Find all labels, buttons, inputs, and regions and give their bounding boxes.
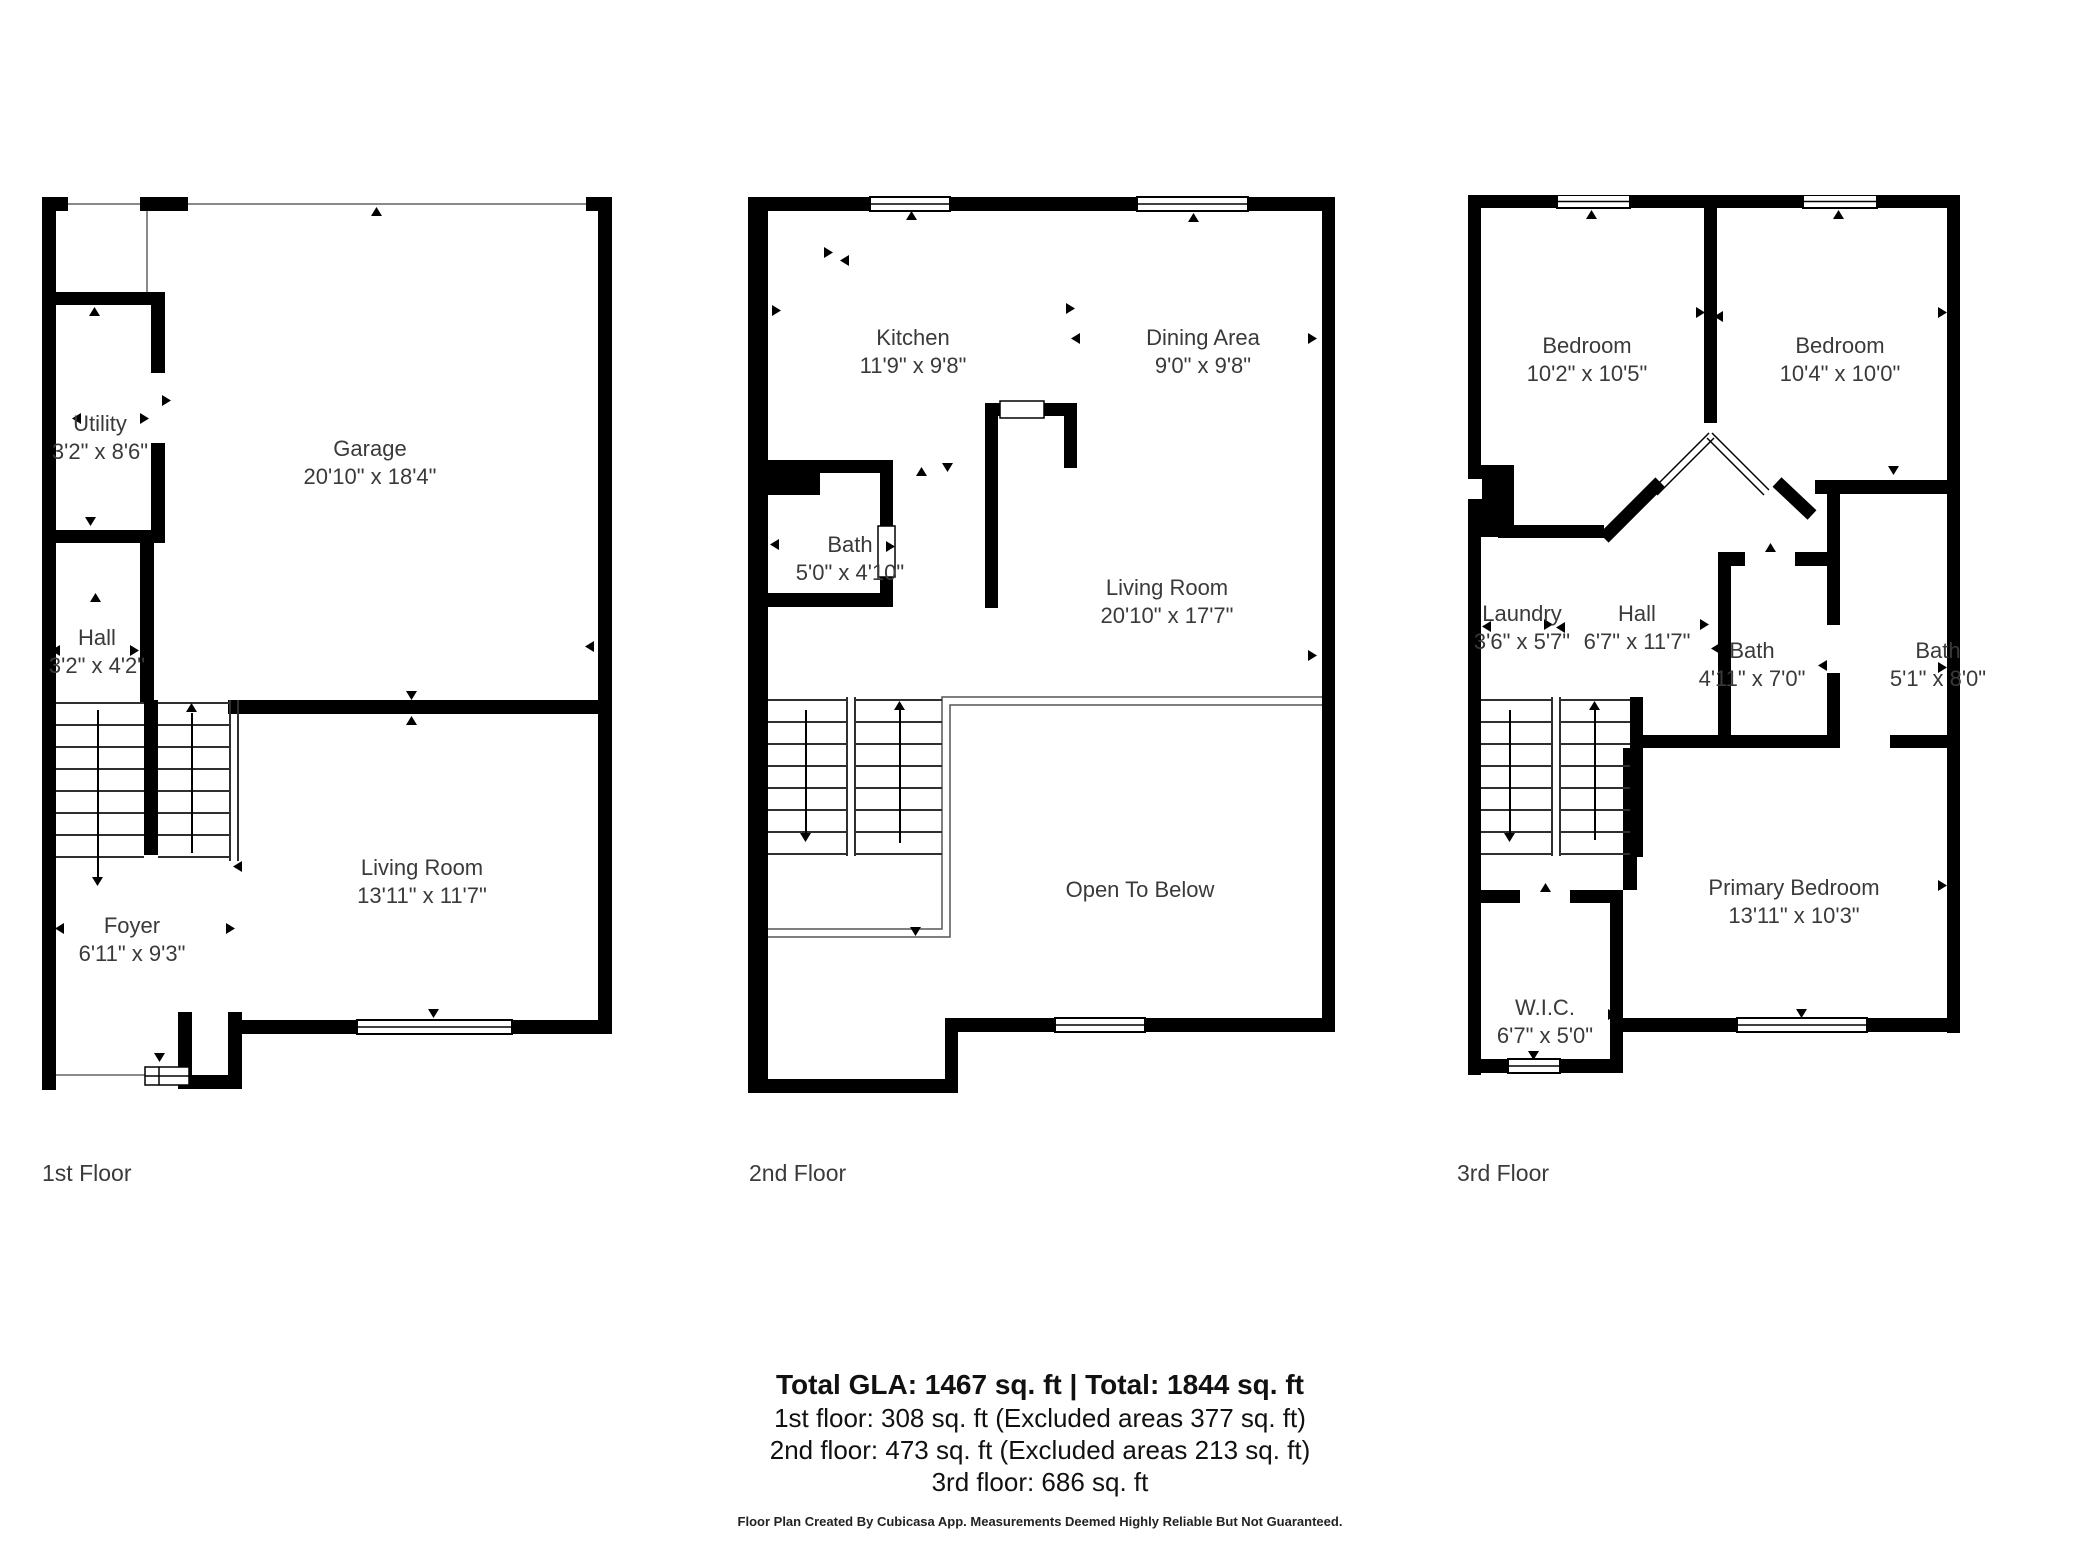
room-label-wic: W.I.C. 6'7" x 5'0" xyxy=(1497,994,1593,1050)
floor-plan-1: Utility 3'2" x 8'6" Garage 20'10" x 18'4… xyxy=(42,195,622,1095)
floor-plan-2: Kitchen 11'9" x 9'8" Dining Area 9'0" x … xyxy=(748,195,1338,1100)
room-label-foyer: Foyer 6'11" x 9'3" xyxy=(79,912,186,968)
bath-door-gap xyxy=(1745,552,1795,566)
footer-note: Floor Plan Created By Cubicasa App. Meas… xyxy=(0,1514,2080,1529)
room-dims: 3'2" x 4'2" xyxy=(49,652,145,680)
room-name: Open To Below xyxy=(1066,876,1215,904)
floor-caption-3: 3rd Floor xyxy=(1457,1160,1549,1187)
room-dims: 3'2" x 8'6" xyxy=(52,438,148,466)
room-label-bath-right: Bath 5'1" x 8'0" xyxy=(1890,637,1986,693)
summary-floor3: 3rd floor: 686 sq. ft xyxy=(0,1466,2080,1498)
room-label-bedroom-right: Bedroom 10'4" x 10'0" xyxy=(1780,332,1901,388)
summary-floor2: 2nd floor: 473 sq. ft (Excluded areas 21… xyxy=(0,1434,2080,1466)
room-name: Hall xyxy=(1584,600,1691,628)
room-dims: 5'1" x 8'0" xyxy=(1890,665,1986,693)
room-name: Bath xyxy=(1890,637,1986,665)
room-label-utility: Utility 3'2" x 8'6" xyxy=(52,410,148,466)
summary-floor1: 1st floor: 308 sq. ft (Excluded areas 37… xyxy=(0,1402,2080,1434)
open-to-below-boundary xyxy=(768,697,1322,937)
room-dims: 9'0" x 9'8" xyxy=(1146,352,1260,380)
room-label-garage: Garage 20'10" x 18'4" xyxy=(304,435,437,491)
room-dims: 6'11" x 9'3" xyxy=(79,940,186,968)
room-label-bedroom-left: Bedroom 10'2" x 10'5" xyxy=(1527,332,1648,388)
room-name: Living Room xyxy=(357,854,487,882)
room-name: Hall xyxy=(49,624,145,652)
room-name: W.I.C. xyxy=(1497,994,1593,1022)
room-name: Bedroom xyxy=(1780,332,1901,360)
wall-notch xyxy=(1468,479,1482,499)
room-label-hall: Hall 6'7" x 11'7" xyxy=(1584,600,1691,656)
room-name: Bath xyxy=(796,531,904,559)
floor-plan-3: Bedroom 10'2" x 10'5" Bedroom 10'4" x 10… xyxy=(1460,195,1960,1100)
room-label-bath: Bath 5'0" x 4'10" xyxy=(796,531,904,587)
room-name: Foyer xyxy=(79,912,186,940)
room-name: Kitchen xyxy=(860,324,967,352)
room-dims: 20'10" x 17'7" xyxy=(1101,602,1234,630)
room-label-living-room: Living Room 13'11" x 11'7" xyxy=(357,854,487,910)
room-dims: 10'2" x 10'5" xyxy=(1527,360,1648,388)
room-dims: 6'7" x 11'7" xyxy=(1584,628,1691,656)
room-label-laundry: Laundry 3'6" x 5'7" xyxy=(1474,600,1570,656)
room-name: Laundry xyxy=(1474,600,1570,628)
room-label-open-to-below: Open To Below xyxy=(1066,876,1215,904)
diagonal-walls xyxy=(1604,482,1812,538)
room-name: Garage xyxy=(304,435,437,463)
room-dims: 5'0" x 4'10" xyxy=(796,559,904,587)
room-label-hall: Hall 3'2" x 4'2" xyxy=(49,624,145,680)
room-label-bath-left: Bath 4'11" x 7'0" xyxy=(1699,637,1806,693)
room-dims: 3'6" x 5'7" xyxy=(1474,628,1570,656)
room-name: Living Room xyxy=(1101,574,1234,602)
room-dims: 13'11" x 10'3" xyxy=(1708,902,1879,930)
room-dims: 10'4" x 10'0" xyxy=(1780,360,1901,388)
room-label-kitchen: Kitchen 11'9" x 9'8" xyxy=(860,324,967,380)
room-dims: 13'11" x 11'7" xyxy=(357,882,487,910)
floor-plan-page: Utility 3'2" x 8'6" Garage 20'10" x 18'4… xyxy=(0,0,2080,1560)
diagonal-door-leaves xyxy=(1652,433,1769,495)
front-door-threshold xyxy=(145,1067,189,1085)
stairs xyxy=(768,697,942,856)
room-label-living-room: Living Room 20'10" x 17'7" xyxy=(1101,574,1234,630)
floor-caption-2: 2nd Floor xyxy=(749,1160,846,1187)
room-label-dining-area: Dining Area 9'0" x 9'8" xyxy=(1146,324,1260,380)
room-name: Bedroom xyxy=(1527,332,1648,360)
room-name: Utility xyxy=(52,410,148,438)
window xyxy=(357,1020,512,1034)
stairs xyxy=(1481,697,1630,856)
room-name: Dining Area xyxy=(1146,324,1260,352)
room-dims: 6'7" x 5'0" xyxy=(1497,1022,1593,1050)
room-name: Bath xyxy=(1699,637,1806,665)
area-summary: Total GLA: 1467 sq. ft | Total: 1844 sq.… xyxy=(0,1368,2080,1498)
room-name: Primary Bedroom xyxy=(1708,874,1879,902)
room-dims: 20'10" x 18'4" xyxy=(304,463,437,491)
summary-total: Total GLA: 1467 sq. ft | Total: 1844 sq.… xyxy=(0,1368,2080,1402)
room-label-primary-bedroom: Primary Bedroom 13'11" x 10'3" xyxy=(1708,874,1879,930)
floor-caption-1: 1st Floor xyxy=(42,1160,131,1187)
room-dims: 4'11" x 7'0" xyxy=(1699,665,1806,693)
room-dims: 11'9" x 9'8" xyxy=(860,352,967,380)
